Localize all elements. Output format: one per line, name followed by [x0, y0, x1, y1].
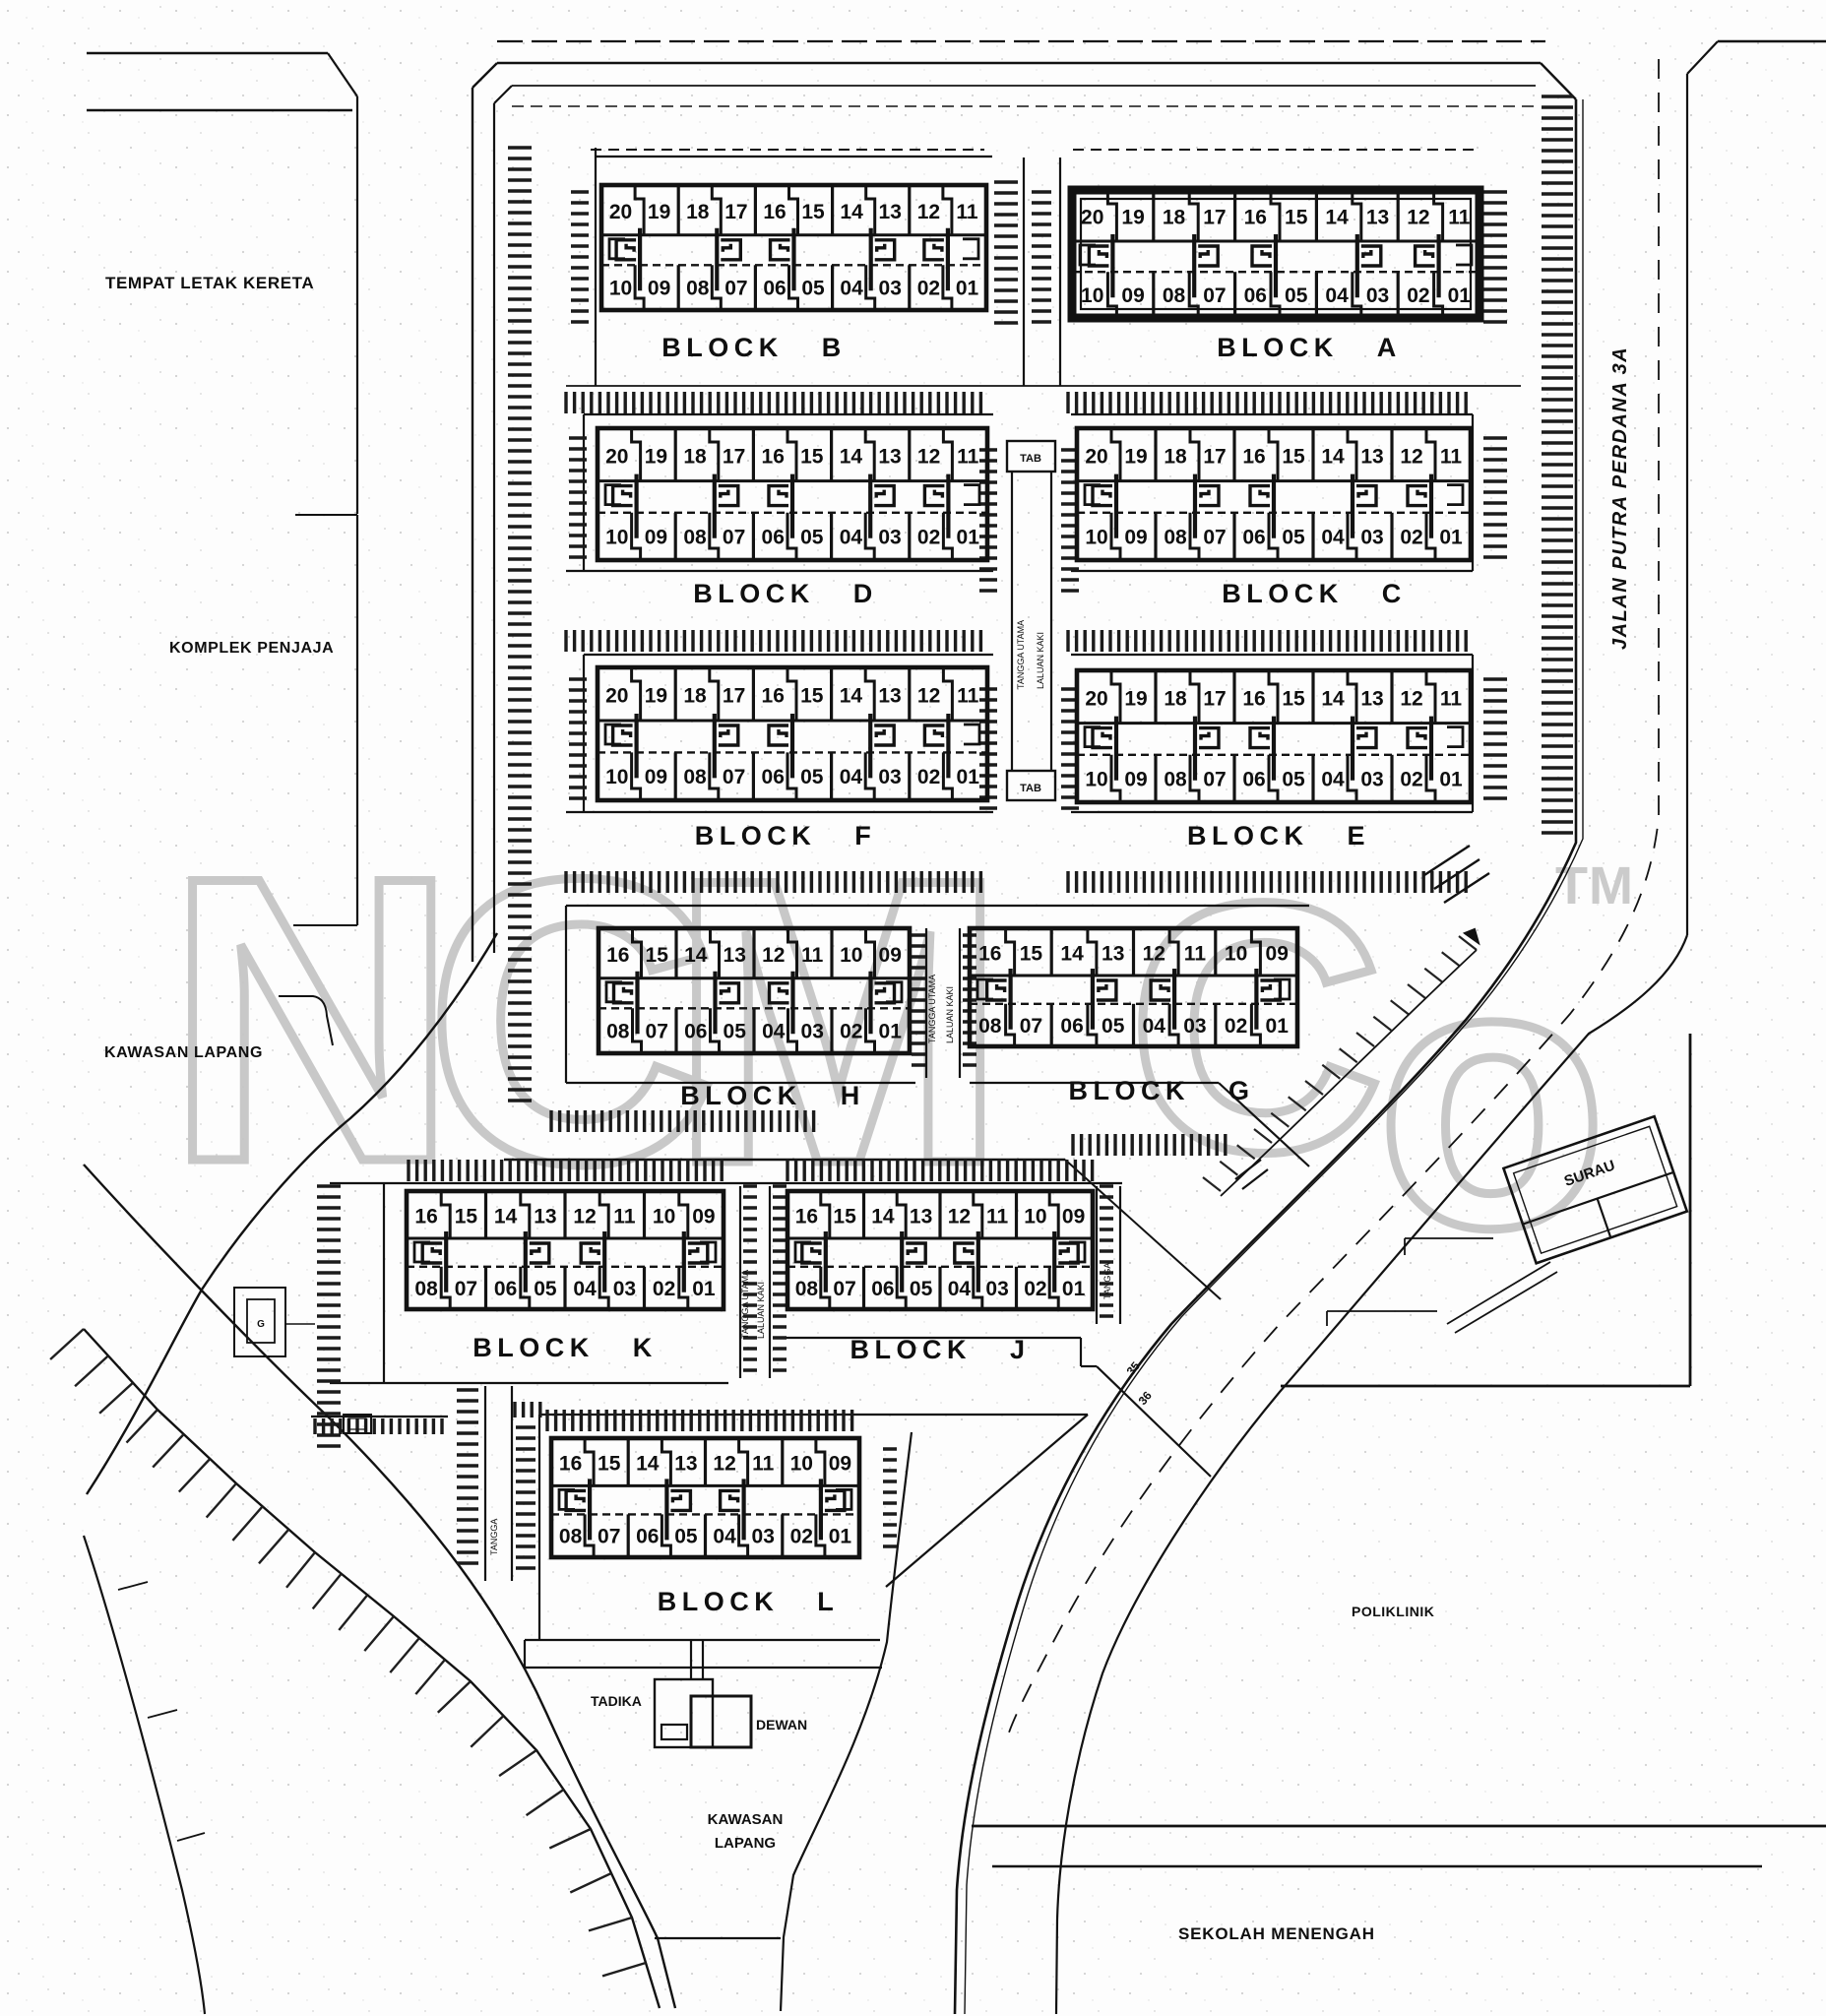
svg-text:06: 06 [762, 766, 785, 788]
svg-text:02: 02 [917, 278, 940, 300]
svg-text:03: 03 [1366, 284, 1389, 307]
svg-text:01: 01 [879, 1021, 903, 1043]
svg-text:19: 19 [1124, 445, 1147, 468]
svg-text:04: 04 [840, 766, 863, 788]
svg-text:07: 07 [455, 1278, 477, 1300]
svg-text:03: 03 [985, 1278, 1008, 1300]
svg-text:BLOCK K: BLOCK K [472, 1333, 658, 1362]
svg-text:11: 11 [801, 944, 824, 967]
svg-text:17: 17 [1203, 687, 1226, 710]
svg-text:07: 07 [646, 1021, 668, 1043]
svg-text:06: 06 [1242, 526, 1265, 548]
svg-text:01: 01 [829, 1526, 852, 1548]
svg-text:POLIKLINIK: POLIKLINIK [1352, 1604, 1434, 1619]
svg-text:16: 16 [414, 1206, 437, 1228]
svg-text:20: 20 [605, 685, 628, 708]
svg-text:TANGGA: TANGGA [489, 1519, 499, 1555]
svg-text:09: 09 [1124, 526, 1147, 548]
svg-text:14: 14 [636, 1453, 660, 1476]
svg-text:09: 09 [829, 1453, 851, 1476]
svg-text:15: 15 [1282, 445, 1305, 468]
svg-text:KOMPLEK PENJAJA: KOMPLEK PENJAJA [169, 640, 334, 657]
svg-text:16: 16 [763, 201, 786, 223]
svg-text:07: 07 [1203, 768, 1226, 790]
svg-text:11: 11 [1184, 943, 1207, 966]
svg-text:04: 04 [1321, 526, 1345, 548]
svg-text:13: 13 [879, 201, 902, 223]
svg-text:12: 12 [1143, 943, 1165, 966]
svg-text:04: 04 [840, 526, 863, 548]
svg-text:02: 02 [1407, 284, 1429, 307]
svg-text:07: 07 [1020, 1015, 1042, 1038]
svg-text:13: 13 [724, 944, 746, 967]
svg-text:12: 12 [1400, 687, 1422, 710]
svg-text:01: 01 [957, 526, 980, 548]
svg-text:20: 20 [605, 445, 628, 468]
svg-text:11: 11 [613, 1206, 636, 1228]
svg-text:16: 16 [795, 1206, 818, 1228]
svg-text:08: 08 [1163, 284, 1186, 307]
svg-text:04: 04 [762, 1021, 786, 1043]
svg-text:BLOCK G: BLOCK G [1069, 1076, 1255, 1105]
svg-text:01: 01 [957, 766, 980, 788]
svg-text:15: 15 [1020, 943, 1043, 966]
svg-text:06: 06 [762, 526, 785, 548]
svg-text:07: 07 [1203, 526, 1226, 548]
svg-text:BLOCK A: BLOCK A [1217, 333, 1402, 362]
svg-text:16: 16 [559, 1453, 582, 1476]
svg-text:05: 05 [800, 766, 824, 788]
svg-text:09: 09 [1121, 284, 1144, 307]
svg-text:08: 08 [795, 1278, 819, 1300]
svg-text:15: 15 [455, 1206, 478, 1228]
svg-text:13: 13 [1102, 943, 1124, 966]
svg-text:07: 07 [833, 1278, 855, 1300]
svg-text:03: 03 [801, 1021, 824, 1043]
svg-text:06: 06 [636, 1526, 659, 1548]
svg-text:10: 10 [653, 1206, 675, 1228]
svg-text:14: 14 [840, 201, 863, 223]
svg-text:12: 12 [948, 1206, 971, 1228]
svg-text:06: 06 [1060, 1015, 1083, 1038]
svg-text:N: N [165, 793, 459, 1246]
svg-text:02: 02 [1400, 768, 1422, 790]
svg-text:03: 03 [879, 278, 902, 300]
svg-text:13: 13 [1360, 687, 1383, 710]
svg-text:11: 11 [1440, 445, 1463, 468]
svg-text:17: 17 [723, 685, 745, 708]
svg-text:04: 04 [840, 278, 863, 300]
svg-text:14: 14 [840, 685, 863, 708]
svg-text:20: 20 [1081, 207, 1103, 229]
svg-text:01: 01 [1439, 526, 1463, 548]
svg-text:05: 05 [724, 1021, 747, 1043]
svg-text:DEWAN: DEWAN [756, 1717, 807, 1732]
svg-text:13: 13 [1360, 445, 1383, 468]
svg-text:01: 01 [1439, 768, 1463, 790]
svg-text:06: 06 [1242, 768, 1265, 790]
svg-text:14: 14 [1321, 445, 1345, 468]
svg-text:07: 07 [723, 526, 745, 548]
svg-text:18: 18 [1164, 687, 1187, 710]
svg-text:13: 13 [1366, 207, 1389, 229]
svg-text:02: 02 [1024, 1278, 1046, 1300]
svg-text:09: 09 [1062, 1206, 1085, 1228]
svg-text:15: 15 [1285, 207, 1308, 229]
svg-text:17: 17 [1203, 445, 1226, 468]
svg-text:10: 10 [1024, 1206, 1046, 1228]
svg-text:14: 14 [684, 944, 708, 967]
svg-text:14: 14 [840, 445, 863, 468]
svg-text:05: 05 [910, 1278, 933, 1300]
svg-text:11: 11 [956, 201, 978, 223]
svg-text:20: 20 [1085, 687, 1107, 710]
svg-text:KAWASAN: KAWASAN [708, 1811, 784, 1828]
svg-text:02: 02 [1400, 526, 1422, 548]
svg-text:04: 04 [713, 1526, 736, 1548]
svg-text:15: 15 [646, 944, 669, 967]
svg-text:06: 06 [871, 1278, 894, 1300]
svg-text:15: 15 [800, 445, 824, 468]
svg-text:15: 15 [801, 201, 825, 223]
svg-text:02: 02 [653, 1278, 675, 1300]
svg-text:12: 12 [573, 1206, 596, 1228]
svg-text:07: 07 [1203, 284, 1226, 307]
svg-text:10: 10 [605, 526, 628, 548]
svg-text:04: 04 [1325, 284, 1349, 307]
svg-text:BLOCK F: BLOCK F [695, 821, 877, 850]
svg-text:TADIKA: TADIKA [591, 1693, 642, 1709]
svg-text:18: 18 [1163, 207, 1186, 229]
svg-text:BLOCK B: BLOCK B [661, 333, 847, 362]
svg-text:10: 10 [605, 766, 628, 788]
svg-text:10: 10 [790, 1453, 813, 1476]
svg-text:10: 10 [1085, 768, 1107, 790]
svg-text:TEMPAT LETAK KERETA: TEMPAT LETAK KERETA [105, 274, 314, 292]
svg-text:09: 09 [1124, 768, 1147, 790]
svg-text:12: 12 [917, 201, 940, 223]
svg-text:JALAN PUTRA PERDANA 3A: JALAN PUTRA PERDANA 3A [1609, 346, 1631, 650]
svg-text:13: 13 [878, 685, 901, 708]
svg-text:05: 05 [800, 526, 824, 548]
svg-text:01: 01 [1448, 284, 1472, 307]
svg-text:04: 04 [948, 1278, 972, 1300]
svg-text:18: 18 [683, 685, 707, 708]
svg-text:05: 05 [801, 278, 825, 300]
svg-text:02: 02 [1225, 1015, 1247, 1038]
svg-text:12: 12 [917, 685, 940, 708]
svg-text:13: 13 [910, 1206, 932, 1228]
svg-text:16: 16 [762, 445, 785, 468]
svg-text:11: 11 [957, 445, 979, 468]
svg-text:08: 08 [683, 766, 707, 788]
svg-text:05: 05 [534, 1278, 557, 1300]
svg-text:10: 10 [1081, 284, 1103, 307]
svg-text:05: 05 [1285, 284, 1308, 307]
svg-text:08: 08 [1164, 768, 1187, 790]
svg-text:16: 16 [1242, 687, 1265, 710]
svg-text:19: 19 [645, 445, 667, 468]
svg-text:12: 12 [1400, 445, 1422, 468]
svg-text:14: 14 [1060, 943, 1084, 966]
svg-text:18: 18 [1164, 445, 1187, 468]
svg-text:10: 10 [1225, 943, 1247, 966]
svg-text:15: 15 [833, 1206, 856, 1228]
svg-text:14: 14 [494, 1206, 518, 1228]
svg-text:03: 03 [1360, 526, 1383, 548]
svg-text:08: 08 [978, 1015, 1002, 1038]
svg-text:07: 07 [723, 766, 745, 788]
svg-text:05: 05 [674, 1526, 698, 1548]
svg-text:18: 18 [686, 201, 710, 223]
svg-text:09: 09 [648, 278, 670, 300]
svg-text:14: 14 [1321, 687, 1345, 710]
svg-text:01: 01 [692, 1278, 716, 1300]
svg-text:04: 04 [1321, 768, 1345, 790]
svg-text:13: 13 [878, 445, 901, 468]
svg-text:TAB: TAB [1020, 783, 1041, 794]
svg-text:03: 03 [613, 1278, 636, 1300]
svg-text:05: 05 [1282, 526, 1305, 548]
svg-text:04: 04 [573, 1278, 597, 1300]
svg-text:KAWASAN LAPANG: KAWASAN LAPANG [104, 1044, 263, 1061]
svg-text:01: 01 [1266, 1015, 1290, 1038]
svg-text:BLOCK H: BLOCK H [680, 1081, 865, 1110]
svg-text:10: 10 [609, 278, 632, 300]
svg-text:02: 02 [917, 526, 940, 548]
svg-text:08: 08 [414, 1278, 438, 1300]
svg-text:16: 16 [1242, 445, 1265, 468]
svg-text:16: 16 [606, 944, 629, 967]
svg-text:SEKOLAH MENENGAH: SEKOLAH MENENGAH [1178, 1924, 1375, 1943]
svg-text:09: 09 [692, 1206, 715, 1228]
svg-text:G: G [257, 1319, 265, 1330]
svg-text:03: 03 [878, 766, 901, 788]
svg-text:09: 09 [1266, 943, 1289, 966]
svg-text:17: 17 [723, 445, 745, 468]
svg-text:10: 10 [1085, 526, 1107, 548]
svg-text:12: 12 [1407, 207, 1429, 229]
svg-text:15: 15 [1282, 687, 1305, 710]
svg-text:19: 19 [1121, 207, 1144, 229]
svg-text:06: 06 [763, 278, 786, 300]
svg-text:11: 11 [752, 1453, 775, 1476]
svg-text:20: 20 [1085, 445, 1107, 468]
svg-text:18: 18 [683, 445, 707, 468]
svg-text:11: 11 [1448, 207, 1471, 229]
svg-text:LALUAN KAKI: LALUAN KAKI [945, 986, 955, 1043]
svg-text:05: 05 [1102, 1015, 1125, 1038]
svg-text:TAB: TAB [1020, 453, 1041, 465]
svg-text:BLOCK D: BLOCK D [693, 579, 878, 608]
svg-text:03: 03 [1183, 1015, 1206, 1038]
svg-text:09: 09 [879, 944, 902, 967]
svg-text:09: 09 [645, 766, 667, 788]
svg-text:11: 11 [957, 685, 979, 708]
svg-text:19: 19 [645, 685, 667, 708]
svg-text:16: 16 [762, 685, 785, 708]
svg-text:02: 02 [790, 1526, 813, 1548]
svg-text:03: 03 [878, 526, 901, 548]
svg-text:BLOCK L: BLOCK L [658, 1587, 840, 1616]
svg-text:14: 14 [871, 1206, 895, 1228]
svg-text:01: 01 [956, 278, 979, 300]
svg-text:08: 08 [1164, 526, 1187, 548]
svg-text:08: 08 [683, 526, 707, 548]
svg-text:03: 03 [752, 1526, 775, 1548]
svg-text:02: 02 [917, 766, 940, 788]
svg-text:13: 13 [674, 1453, 697, 1476]
svg-text:04: 04 [1143, 1015, 1166, 1038]
svg-text:11: 11 [986, 1206, 1009, 1228]
svg-text:10: 10 [840, 944, 862, 967]
svg-text:TM: TM [1555, 856, 1634, 915]
svg-text:06: 06 [684, 1021, 707, 1043]
svg-text:06: 06 [494, 1278, 517, 1300]
svg-text:08: 08 [559, 1526, 583, 1548]
svg-text:LAPANG: LAPANG [715, 1835, 776, 1852]
svg-text:16: 16 [978, 943, 1001, 966]
svg-text:09: 09 [645, 526, 667, 548]
svg-text:TANGGA UTAMA: TANGGA UTAMA [927, 975, 937, 1043]
svg-text:LALUAN KAKI: LALUAN KAKI [1036, 632, 1045, 689]
svg-text:02: 02 [840, 1021, 862, 1043]
svg-text:LALUAN KAKI: LALUAN KAKI [756, 1282, 766, 1339]
svg-text:19: 19 [1124, 687, 1147, 710]
svg-text:07: 07 [724, 278, 747, 300]
svg-text:11: 11 [1440, 687, 1463, 710]
svg-text:BLOCK C: BLOCK C [1222, 579, 1407, 608]
svg-text:08: 08 [606, 1021, 630, 1043]
svg-text:12: 12 [917, 445, 940, 468]
svg-text:17: 17 [724, 201, 747, 223]
svg-text:TANGGA UTAMA: TANGGA UTAMA [1016, 620, 1026, 689]
svg-text:03: 03 [1360, 768, 1383, 790]
svg-text:12: 12 [762, 944, 785, 967]
svg-text:BLOCK J: BLOCK J [850, 1335, 1030, 1364]
svg-text:BLOCK E: BLOCK E [1187, 821, 1370, 850]
svg-text:12: 12 [713, 1453, 735, 1476]
svg-text:14: 14 [1325, 207, 1349, 229]
svg-text:07: 07 [598, 1526, 620, 1548]
svg-text:06: 06 [1244, 284, 1267, 307]
svg-text:05: 05 [1282, 768, 1305, 790]
svg-text:20: 20 [609, 201, 632, 223]
svg-text:15: 15 [800, 685, 824, 708]
svg-text:17: 17 [1203, 207, 1226, 229]
svg-text:19: 19 [648, 201, 670, 223]
svg-text:16: 16 [1244, 207, 1267, 229]
svg-text:01: 01 [1062, 1278, 1086, 1300]
svg-text:13: 13 [534, 1206, 556, 1228]
svg-text:15: 15 [598, 1453, 621, 1476]
svg-text:08: 08 [686, 278, 710, 300]
